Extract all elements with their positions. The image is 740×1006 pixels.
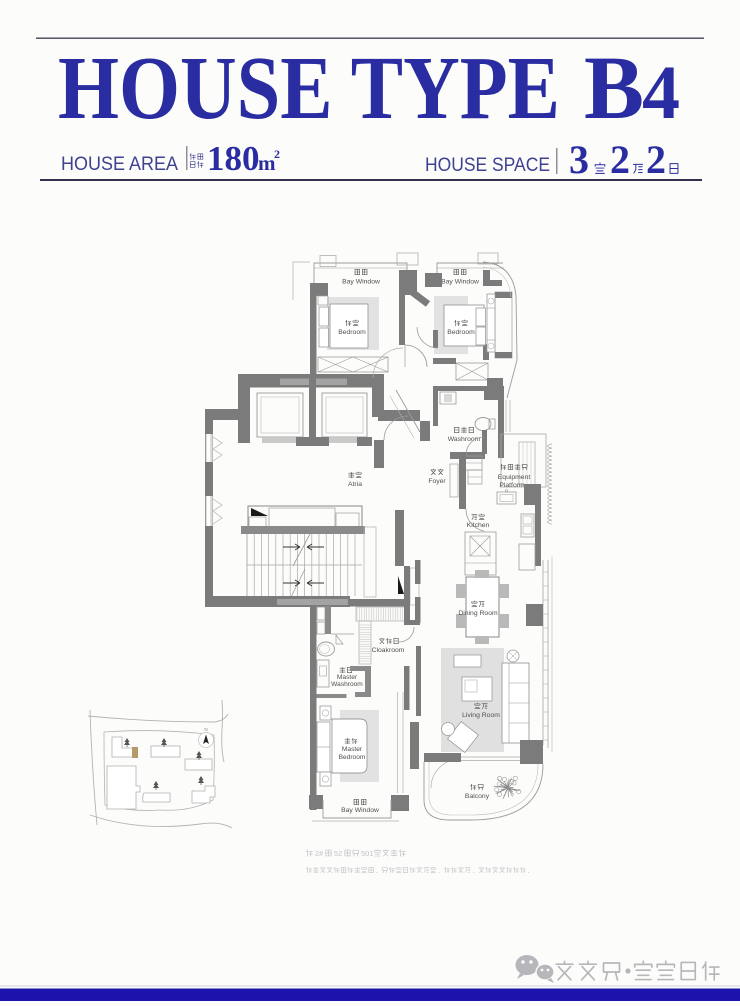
svg-text:Kitchen: Kitchen xyxy=(467,522,490,529)
svg-text:4: 4 xyxy=(642,51,680,135)
svg-text:Bay Window: Bay Window xyxy=(341,807,379,814)
svg-text:HOUSE AREA: HOUSE AREA xyxy=(61,154,178,175)
svg-text:2: 2 xyxy=(274,147,280,161)
svg-text:Foyer: Foyer xyxy=(428,478,446,485)
svg-text:Dining Room: Dining Room xyxy=(458,610,498,617)
svg-text:Bedroom: Bedroom xyxy=(447,329,475,336)
svg-text:Washroom: Washroom xyxy=(448,436,481,443)
svg-text:52: 52 xyxy=(334,849,342,858)
svg-text:2: 2 xyxy=(646,137,666,182)
svg-text:501: 501 xyxy=(361,849,374,858)
svg-text:N: N xyxy=(204,727,207,732)
svg-text:2: 2 xyxy=(610,137,630,182)
svg-text:Master: Master xyxy=(337,674,358,681)
svg-text:Bedroom: Bedroom xyxy=(339,754,366,761)
svg-text:Atria: Atria xyxy=(348,481,362,488)
svg-text:Master: Master xyxy=(342,746,363,753)
svg-text:HOUSE SPACE: HOUSE SPACE xyxy=(425,155,550,176)
svg-text:Bay Window: Bay Window xyxy=(342,279,380,286)
svg-text:2#: 2# xyxy=(315,849,324,858)
svg-text:180: 180 xyxy=(207,139,260,178)
svg-text:Living Room: Living Room xyxy=(462,712,500,719)
svg-text:Balcony: Balcony xyxy=(465,793,490,800)
svg-text:3: 3 xyxy=(569,137,589,182)
svg-text:Equipment: Equipment xyxy=(498,474,531,481)
svg-text:Washroom: Washroom xyxy=(331,681,363,688)
svg-text:Platform: Platform xyxy=(499,482,525,489)
svg-text:HOUSE TYPE: HOUSE TYPE xyxy=(58,39,560,138)
svg-text:Bedroom: Bedroom xyxy=(338,329,366,336)
svg-text:B: B xyxy=(584,39,644,138)
svg-text:Cloakroom: Cloakroom xyxy=(372,647,405,654)
svg-text:Bay Window: Bay Window xyxy=(441,279,479,286)
